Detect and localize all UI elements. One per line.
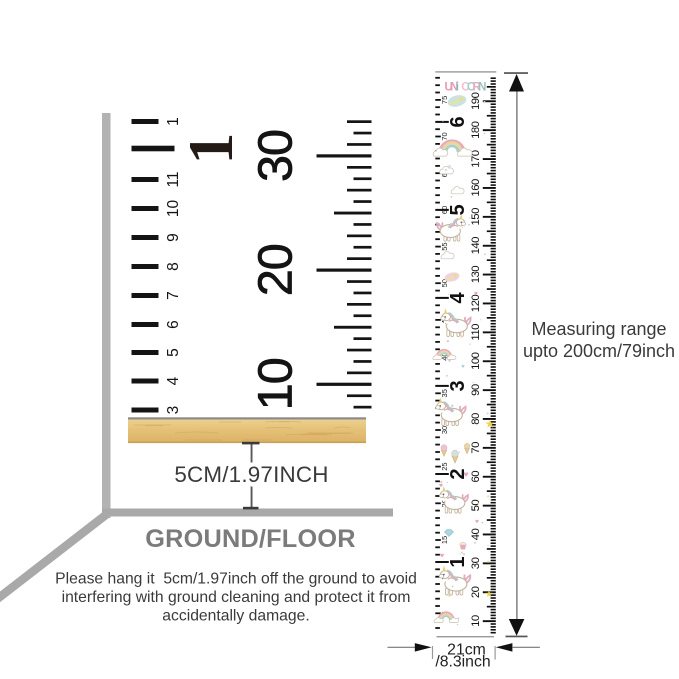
svg-text:30: 30 <box>249 130 303 182</box>
svg-text:15: 15 <box>440 536 449 544</box>
svg-text:10: 10 <box>249 358 303 410</box>
svg-text:80: 80 <box>470 413 482 425</box>
svg-text:upto 200cm/79inch: upto 200cm/79inch <box>523 341 675 361</box>
svg-text:75: 75 <box>440 96 449 104</box>
svg-text:90: 90 <box>470 384 482 396</box>
svg-text:5: 5 <box>447 204 469 215</box>
svg-text:150: 150 <box>470 208 482 226</box>
svg-text:1: 1 <box>447 556 469 567</box>
svg-text:accidentally damage.: accidentally damage. <box>162 608 309 625</box>
svg-text:1: 1 <box>165 117 182 126</box>
svg-text:6: 6 <box>447 116 469 127</box>
svg-text:4: 4 <box>165 376 182 385</box>
svg-text:50: 50 <box>470 500 482 512</box>
svg-text:130: 130 <box>470 266 482 284</box>
svg-text:9: 9 <box>165 233 182 242</box>
svg-text:190: 190 <box>470 92 482 110</box>
svg-text:60: 60 <box>470 471 482 483</box>
svg-text:Measuring range: Measuring range <box>531 319 666 339</box>
svg-text:70: 70 <box>440 132 449 140</box>
svg-text:110: 110 <box>470 324 482 341</box>
svg-text:55: 55 <box>440 242 449 250</box>
svg-text:5CM/1.97INCH: 5CM/1.97INCH <box>174 462 328 487</box>
svg-text:100: 100 <box>470 352 482 370</box>
svg-text:180: 180 <box>470 121 482 139</box>
svg-text:GROUND/FLOOR: GROUND/FLOOR <box>145 525 355 553</box>
svg-text:11: 11 <box>165 171 182 187</box>
svg-text:8: 8 <box>165 262 182 271</box>
svg-text:20: 20 <box>249 244 303 296</box>
svg-text:140: 140 <box>470 237 482 255</box>
svg-text:10: 10 <box>165 200 182 218</box>
svg-text:30: 30 <box>440 426 449 434</box>
svg-text:interfering with ground cleani: interfering with ground cleaning and pro… <box>62 589 411 606</box>
svg-text:10: 10 <box>470 615 482 627</box>
svg-text:5: 5 <box>165 348 182 357</box>
svg-text:20: 20 <box>470 586 482 598</box>
svg-text:i: i <box>456 82 459 94</box>
svg-text:1: 1 <box>175 133 246 165</box>
svg-text:/8.3inch: /8.3inch <box>435 654 490 671</box>
svg-text:Please hang it 5cm/1.97inch o: Please hang it 5cm/1.97inch off the grou… <box>55 571 417 588</box>
svg-text:120: 120 <box>470 295 482 313</box>
svg-text:3: 3 <box>447 380 469 391</box>
svg-text:70: 70 <box>470 442 482 454</box>
svg-text:6: 6 <box>165 320 182 329</box>
svg-text:160: 160 <box>470 179 482 197</box>
svg-text:30: 30 <box>470 557 482 569</box>
svg-text:4: 4 <box>447 291 469 303</box>
svg-text:40: 40 <box>470 529 482 541</box>
svg-text:N: N <box>478 82 486 94</box>
svg-text:3: 3 <box>165 406 182 415</box>
svg-text:7: 7 <box>165 291 182 300</box>
